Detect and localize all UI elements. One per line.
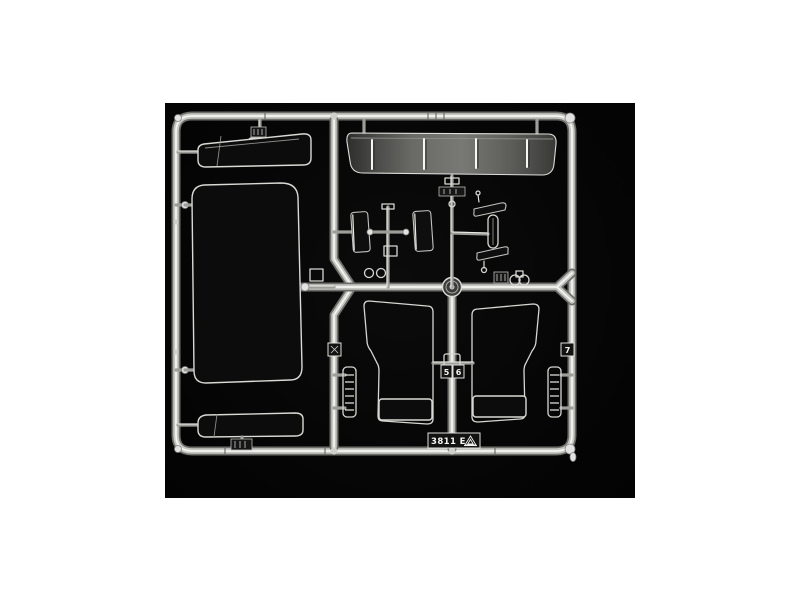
runner-junction	[331, 448, 338, 455]
runner-junction	[331, 113, 338, 120]
mirror-group-right	[452, 191, 529, 285]
door-window-right-lower-pane	[473, 396, 526, 417]
page-background: 7 5 6 3811 E	[0, 0, 800, 600]
small-bracket-part	[310, 269, 323, 281]
gate-number-plate-blank	[251, 127, 266, 137]
mirror-arm-part	[365, 204, 410, 287]
corner-boss-bottom-left	[175, 446, 182, 453]
mold-code-plate: 3811 E	[428, 433, 480, 448]
upper-side-window-part	[178, 120, 311, 167]
gate-number-5-label: 5	[444, 368, 450, 377]
sprue-illustration: 7 5 6 3811 E	[165, 103, 635, 498]
product-photo: 7 5 6 3811 E	[165, 103, 635, 498]
gate-number-7-label: 7	[565, 346, 571, 355]
rear-view-mirror-lower	[477, 247, 508, 273]
corner-boss-top-right	[565, 113, 575, 123]
runner-nub	[174, 350, 179, 355]
gate-number-plate-blank	[439, 187, 465, 196]
sun-visor-part	[347, 120, 556, 287]
gate-number-7-tag: 7	[561, 343, 574, 356]
corner-boss-top-left	[175, 115, 182, 122]
door-window-right-part	[472, 304, 539, 422]
rear-view-mirror-upper	[474, 191, 506, 216]
mold-code-label: 3811 E	[431, 437, 466, 447]
gate-number-6-tag: 6	[453, 365, 464, 378]
gate-number-6-label: 6	[456, 368, 462, 377]
gate-number-5-tag: 5	[441, 365, 452, 378]
door-window-left-lower-pane	[379, 399, 432, 420]
lower-side-window-part	[178, 413, 303, 450]
gate-number-tag-left	[328, 343, 341, 356]
door-window-left-part	[364, 301, 433, 424]
sprue-ejector-tail	[570, 453, 576, 462]
runner-nub	[174, 220, 179, 225]
gate-number-plate-blank	[231, 439, 252, 450]
runner-junction	[449, 448, 456, 455]
